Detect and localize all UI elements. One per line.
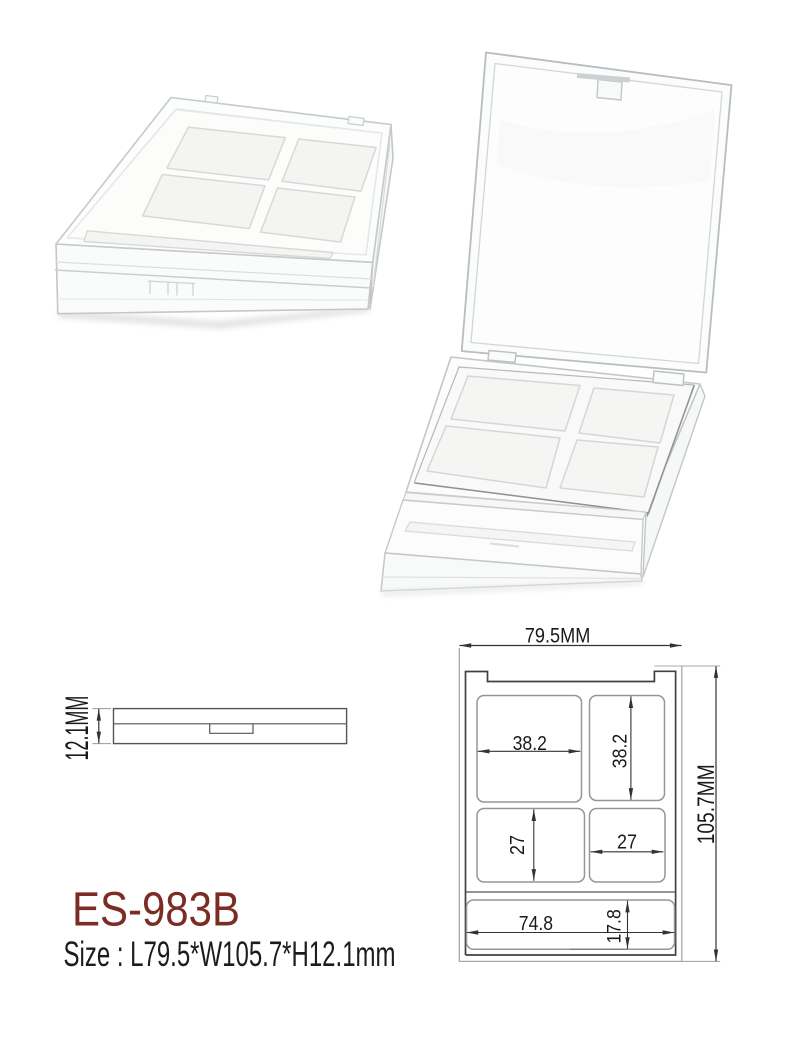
svg-text:74.8: 74.8 xyxy=(519,913,553,935)
svg-text:105.7MM: 105.7MM xyxy=(693,764,720,844)
svg-text:12.1MM: 12.1MM xyxy=(59,696,95,761)
svg-text:38.2: 38.2 xyxy=(610,734,632,768)
svg-text:79.5MM: 79.5MM xyxy=(525,623,591,647)
svg-text:ES-983B: ES-983B xyxy=(72,884,240,937)
svg-text:38.2: 38.2 xyxy=(513,733,547,755)
svg-text:17.8: 17.8 xyxy=(605,909,626,943)
svg-text:Size : L79.5*W105.7*H12.1mm: Size : L79.5*W105.7*H12.1mm xyxy=(64,934,396,974)
svg-text:27: 27 xyxy=(507,835,529,855)
svg-text:27: 27 xyxy=(617,832,637,854)
